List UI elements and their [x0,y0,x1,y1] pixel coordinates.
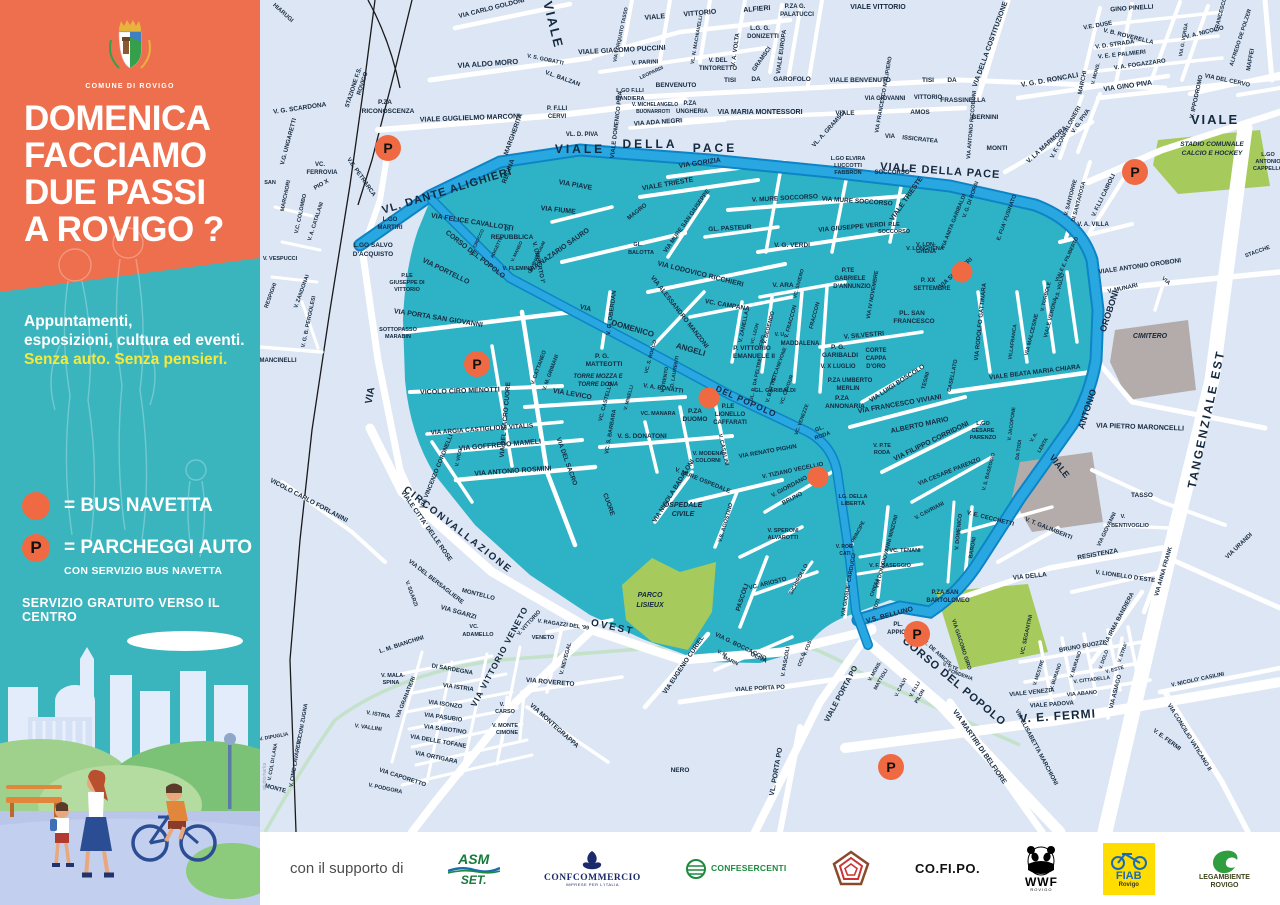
parking-legend-label: = PARCHEGGI AUTO CON SERVIZIO BUS NAVETT… [64,534,252,582]
sidebar: COMUNE DI ROVIGO DOMENICA FACCIAMO DUE P… [0,0,260,905]
street-label: V. [500,702,505,708]
street-label: STADIO COMUNALE [1180,141,1244,148]
street-label: VC. [315,162,325,168]
confesercenti-logo: CONFESERCENTI [685,858,786,880]
rovigo-coat-of-arms-icon [97,18,163,76]
street-label: D'ORO [866,364,886,370]
street-label: V. F. BASEGGIO [869,563,911,569]
map-legend: = BUS NAVETTA P = PARCHEGGI AUTO CON SER… [22,492,252,596]
cofipo-logo: CO.FI.PO. [915,862,980,875]
street-label: D'ACQUISTO [353,251,393,258]
confesercenti-globe-icon [685,858,707,880]
street-label: FERROVIA [306,170,338,176]
street-label: UNGHERIA [676,109,709,115]
street-label: P.LE [888,222,900,228]
map-canvas: HIARUGIVIA CARLO GOLDONIVIALEVIALEVITTOR… [260,0,1280,832]
street-label: V. VESPUCCI [263,256,298,262]
street-label: VIALE BENVENUTO [829,77,891,84]
street-label: VC. TENANI [889,548,921,554]
street-label: SOCCORSO [878,229,911,235]
street-label: REPUBBLICA [491,234,534,241]
street-label: DELLA [623,137,678,151]
street-label: P. VITTORIO [733,345,771,352]
poster-subtitle: Appuntamenti, esposizioni, cultura ed ev… [24,312,245,369]
poster: COMUNE DI ROVIGO DOMENICA FACCIAMO DUE P… [0,0,1280,905]
legambiente-logo: LEGAMBIENTE ROVIGO [1199,848,1250,890]
street-label: P.ZA G. [785,4,806,10]
street-label: P.ZA [378,99,392,106]
legend-bus-row: = BUS NAVETTA [22,492,252,520]
bus-stop-marker [808,467,829,488]
street-label: MANCINELLI [260,358,297,364]
street-label: TASSO [1131,492,1153,499]
street-label: P. XX [921,278,936,284]
street-label: ADAMELLO [462,632,494,638]
street-label: PL. [893,622,903,628]
street-label: MARABIN [385,334,411,340]
street-label: DONIZETTI [747,34,779,40]
street-label: V. FLEMING [503,266,534,272]
street-label: GAROFOLO [773,76,811,83]
subtitle-line: esposizioni, cultura ed eventi. [24,331,245,350]
street-label: TISI [922,77,934,84]
parking-legend-icon: P [22,534,50,562]
street-label: LISIEUX [636,602,665,609]
asm-set-logo: ASM SET. [448,852,500,886]
street-label: VITTORIO [914,95,943,101]
street-label: LIBERTÀ [841,500,865,507]
fiab-logo: FIAB Rovigo [1103,843,1155,895]
title-line: FACCIAMO [24,137,224,174]
street-label: V. ARA [772,282,793,289]
street-label: NERO [671,767,690,774]
street-label: L.GO [976,421,990,427]
street-label: L.GO [1261,152,1275,158]
street-label: P.ZA [688,408,702,415]
street-label: P. F.LLI [547,106,568,112]
street-label: TORRE MOZZA E [573,374,623,380]
street-label: L.G. G. [750,26,770,32]
street-label: VL. D. PIVA [566,132,599,138]
street-label: P. G. [831,344,845,351]
street-label: TORRE DONA [578,382,618,388]
street-label: CIMONE [496,730,518,736]
park-area [1153,130,1270,194]
street-label: ANTONIO [1255,159,1280,165]
title-line: DUE PASSI [24,174,224,211]
title-line: DOMENICA [24,100,224,137]
street-label: V. DEL [709,58,728,64]
street-label: BUONARROTI [636,109,670,115]
parking-marker-letter: P [383,140,392,156]
street-label: VIALE [1191,112,1239,127]
street-label: V. X LUGLIO [820,364,855,370]
street-label: CAFFARATI [713,420,747,426]
subtitle-highlight: Senza auto. Senza pensieri. [24,350,245,369]
street-label: MADDALENA [781,341,820,347]
street-label: GIUSEPPE DI [389,280,425,286]
street-label: CORTE [866,348,887,354]
street-label: LIONELLO [715,412,746,418]
street-label: SAN [264,180,276,186]
street-label: CALCIO E HOCKEY [1182,150,1243,157]
street-label: CAPPELLO [1253,166,1280,172]
street-label: ALVAROTTI [768,535,799,541]
street-label: VC. MANARA [640,411,675,417]
street-label: V. SPERONI [768,528,799,534]
poster-title: DOMENICA FACCIAMO DUE PASSI A ROVIGO ? [24,100,224,248]
street-label: COLORNI [695,458,721,464]
street-label: OSPEDALE [664,502,703,509]
sponsors-footer: con il supporto di ASM SET. CONFCOMMERCI… [260,832,1280,905]
street-label: AMOS [910,109,930,116]
street-label: FRASSINELLA [940,97,986,104]
street-label: FRANCESCO [893,318,934,325]
street-label: P.ZA [835,395,849,402]
street-label: GL. GARIBALDI [754,388,796,394]
street-label: PARCO [638,592,663,599]
pentagon-emblem-logo [831,849,871,889]
wwf-panda-icon [1024,846,1058,876]
street-label: P.ZA SAN [931,590,958,596]
street-label: V. A. VILLA [1077,222,1109,228]
street-label: BENVENUTO [656,82,697,89]
confcommercio-logo: CONFCOMMERCIO IMPRESE PER L'ITALIA [544,850,641,888]
street-label: L.GO ELVIRA [831,156,866,162]
street-label: V. G. VERDI [774,242,810,249]
street-label: BARTOLOMEO [926,598,970,604]
street-label: L.GO SALVO [353,242,393,249]
street-label: VIALE [555,142,605,156]
map-watermark: studiomarka [262,763,268,790]
parking-marker-letter: P [472,356,481,372]
wwf-logo: WWF ROVIGO [1024,846,1058,892]
street-label: PL. SAN [899,310,925,317]
confcommercio-eagle-icon [579,850,605,874]
street-label: V. LONGHENA [906,246,944,252]
park-scene-illustration [0,625,260,905]
comune-crest: COMUNE DI ROVIGO [0,18,260,90]
street-label: DA [947,77,957,84]
street-label: SOCCORSO [874,170,909,176]
street-label: SPINA [383,680,400,686]
street-label: V. P.TE [873,443,891,449]
street-label: SOTTOPASSO [379,327,417,333]
street-label: EMANUELE II [733,353,775,360]
street-label: P. [504,226,509,233]
street-label: V. S. DONATONI [617,433,667,440]
street-label: TISI [724,77,736,84]
parking-legend-sublabel: CON SERVIZIO BUS NAVETTA [64,565,222,577]
street-label: RICONOSCENZA [362,108,415,115]
street-label: MONTI [987,145,1008,152]
street-label: V. MICHELANGELO [632,102,678,108]
parking-marker-letter: P [912,626,921,642]
service-note: SERVIZIO GRATUITO VERSO IL CENTRO [22,596,260,624]
street-label: GABRIELE [834,276,865,282]
street-label: P.ZA UMBERTO [828,378,873,384]
street-label: MERLIN [837,386,860,392]
street-label: DA [751,76,761,83]
street-label: V. MONTE [492,723,518,729]
street-label: CAPPA [866,356,887,362]
street-label: P.LE [401,273,413,279]
street-label: GL. [633,242,643,248]
bus-stop-legend-icon [22,492,50,520]
street-label: P.LE [722,404,735,410]
comune-caption: COMUNE DI ROVIGO [0,83,260,90]
street-label: PARENZO [970,435,997,441]
street-label: DUOMO [683,416,708,423]
rovigo-city-map: HIARUGIVIA CARLO GOLDONIVIALEVIALEVITTOR… [260,0,1280,832]
street-label: V. MALA- [381,673,405,679]
title-line: A ROVIGO ? [24,211,224,248]
street-label: FABBRON [834,170,861,176]
street-label: CESARE [972,428,995,434]
street-label: VITTORIO [394,287,421,293]
street-label: V. MODENA [693,451,724,457]
street-label: MATTEOTTI [586,361,623,368]
street-label: P.TE [842,268,855,274]
street-label: CIVILE [672,511,695,518]
bus-legend-label: = BUS NAVETTA [64,492,213,516]
legambiente-swan-icon [1210,848,1240,874]
street-label: VC. [469,624,479,630]
street-label: CERVI [548,114,567,120]
street-label: TINTORETTO [699,66,737,72]
street-label: VIA [885,134,896,140]
supporto-label: con il supporto di [290,860,403,877]
street-label: BALOTTA [628,250,654,256]
street-label: MARTIRI [378,225,403,231]
street-label: PALATUCCI [780,12,814,18]
legend-parking-row: P = PARCHEGGI AUTO CON SERVIZIO BUS NAVE… [22,534,252,582]
street-label: P. G. [595,353,609,360]
street-label: CIMITERO [1133,333,1168,340]
street-label: D'ANNUNZIO [833,284,871,290]
street-label: VENETO [532,635,555,641]
fiab-bicycle-icon [1110,850,1148,870]
pentagon-emblem-icon [831,849,871,889]
street-label: LUCCOTTI [834,163,862,169]
street-label: L.GO [383,217,398,223]
street-label: LG. DELLA [838,494,867,500]
street-label: V. [1121,514,1126,520]
street-label: VIALE VITTORIO [850,4,906,11]
bus-stop-marker [699,388,720,409]
street-label: P.ZA [684,101,698,107]
parking-marker-letter: P [886,759,895,775]
bus-stop-marker [952,262,973,283]
street-label: SETTEMBRE [913,286,950,292]
parking-marker-letter: P [1130,164,1139,180]
subtitle-line: Appuntamenti, [24,312,245,331]
street-label: RODA [874,450,890,456]
street-label: CATI [839,551,851,557]
street-label: GARIBALDI [822,352,858,359]
street-label: BENTIVOGLIO [1111,523,1150,529]
street-label: VIA MARIA MONTESSORI [717,109,802,116]
street-label: PACE [693,141,737,155]
street-label: CARSO [495,709,516,715]
